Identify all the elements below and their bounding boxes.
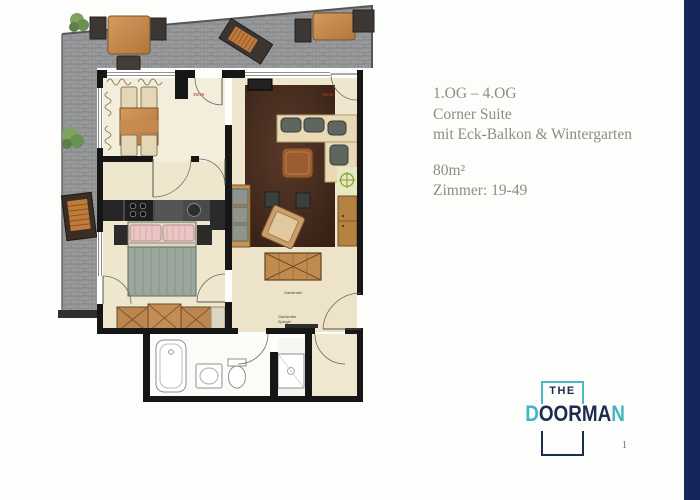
doorman-logo: THE DOORMAN <box>518 378 608 460</box>
suite-name: Corner Suite <box>433 105 678 126</box>
vestibule-floor <box>312 334 357 396</box>
kitchen-sink <box>188 204 201 217</box>
terrace-plant <box>69 13 89 32</box>
logo-doorman-d: D <box>525 401 539 426</box>
suite-info: 1.OG – 4.OG Corner Suite mit Eck-Balkon … <box>433 84 678 202</box>
stool <box>265 192 279 207</box>
suite-features: mit Eck-Balkon & Wintergarten <box>433 125 678 146</box>
nightstand <box>114 225 129 245</box>
terrace-lounger <box>61 192 96 240</box>
logo-doorman-oorma: OORMA <box>539 401 611 426</box>
floor-range: 1.OG – 4.OG <box>433 84 678 105</box>
room-number-label: 39/49 <box>193 92 205 97</box>
survey-marker <box>337 167 359 195</box>
logo-the: THE <box>541 385 584 397</box>
shower <box>278 354 304 388</box>
suite-area: 80m² <box>433 161 678 182</box>
tv-board <box>248 79 272 90</box>
page-number: 1 <box>622 440 627 451</box>
logo-doorman-n: N <box>611 401 625 426</box>
kitchen-tall-cabinet <box>210 200 225 230</box>
brochure-page: 39/49 39/49 Garderobe Garderobe Spiegel … <box>0 0 700 500</box>
terrace-end-wall <box>58 310 98 318</box>
suite-rooms: Zimmer: 19-49 <box>433 181 678 202</box>
washbasin <box>196 364 222 388</box>
garderobe-label: Garderobe <box>284 291 302 295</box>
bathtub <box>156 340 186 392</box>
wall-mirror <box>285 324 318 328</box>
sideboard <box>265 253 321 280</box>
floor-plan: 39/49 39/49 Garderobe Garderobe Spiegel <box>50 4 430 404</box>
accent-bar <box>684 0 700 500</box>
stool <box>296 193 310 208</box>
coffee-table <box>282 148 313 178</box>
mirror-label-line1: Garderobe <box>278 315 296 319</box>
sofa-bench <box>230 185 250 247</box>
nightstand <box>197 225 212 245</box>
hall-wardrobe-cabinet <box>338 196 357 246</box>
room-number-label: 39/49 <box>322 92 334 97</box>
logo-doorman: DOORMAN <box>525 401 601 427</box>
logo-doorframe-bottom <box>541 431 584 456</box>
bedroom-wardrobe <box>117 304 225 332</box>
mirror-label-line2: Spiegel <box>278 320 291 324</box>
